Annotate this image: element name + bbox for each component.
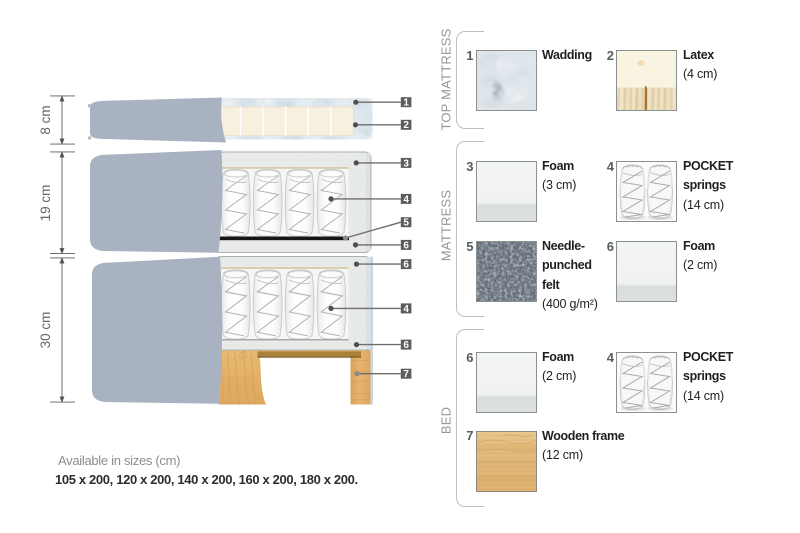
svg-text:5: 5	[403, 218, 409, 229]
svg-text:6: 6	[403, 340, 409, 351]
svg-text:6: 6	[403, 240, 409, 251]
svg-text:1: 1	[403, 98, 409, 109]
svg-text:2: 2	[403, 120, 409, 131]
svg-text:19 cm: 19 cm	[38, 185, 53, 222]
svg-text:4: 4	[403, 194, 409, 205]
svg-text:4: 4	[403, 304, 409, 315]
svg-text:30 cm: 30 cm	[38, 312, 53, 349]
svg-text:7: 7	[403, 369, 409, 380]
svg-text:8 cm: 8 cm	[38, 105, 53, 134]
svg-text:6: 6	[403, 260, 409, 271]
svg-text:3: 3	[403, 158, 409, 169]
